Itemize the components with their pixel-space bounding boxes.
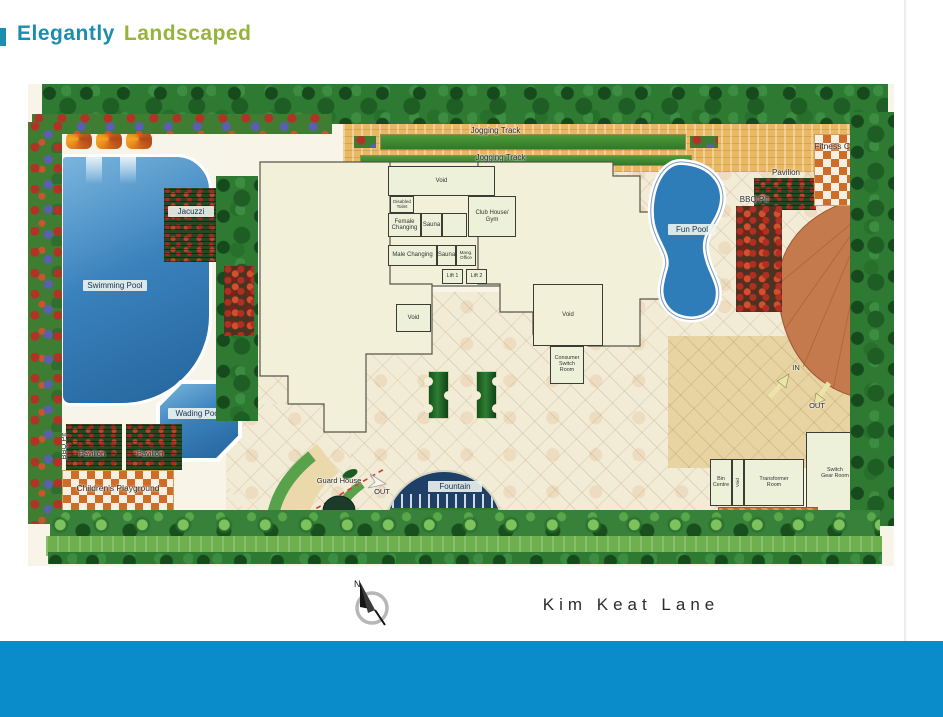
room-void-top: Void: [388, 166, 495, 196]
drive-in-arrow-icon: [770, 374, 789, 397]
waterfall-icon: [86, 156, 102, 184]
hedge-south: [48, 552, 882, 564]
room-bin-centre: Bin Centre: [710, 459, 732, 506]
childrens-playground-label: Children's Playground: [70, 484, 166, 494]
room-void-bin-label: Void: [736, 478, 741, 487]
drive-out-label: OUT: [802, 402, 832, 410]
pavilion-west-1-structure: [66, 424, 122, 470]
pavilion-east-label: Pavilion: [758, 169, 814, 178]
swimming-pool-label: Swimming Pool: [83, 280, 147, 291]
pavilion-west-1-label: Pavilion: [64, 450, 120, 458]
pavilion-west-2-label: Pavilion: [122, 450, 178, 458]
jacuzzi-label: Jacuzzi: [168, 206, 214, 217]
building-blocks: [260, 162, 668, 432]
street-name-label: Kim Keat Lane: [500, 595, 762, 615]
page-fold-line: [904, 0, 907, 641]
room-unlabelled: [442, 213, 467, 237]
courtyard-planter-2: [476, 371, 497, 419]
waterfall-icon: [120, 156, 136, 184]
pavilion-west-2-structure: [126, 424, 182, 470]
guard-house-label: Guard House: [316, 477, 362, 485]
jacuzzi-trellis: [164, 188, 218, 262]
bbq-pit-east-label: BBQ Pit: [728, 196, 780, 205]
east-flower-wall: [736, 206, 782, 312]
page-title-word-1: Elegantly: [17, 22, 115, 45]
room-male-changing: Male Changing: [388, 245, 437, 266]
room-void-block-a: Void: [396, 304, 431, 332]
courtyard-planter-1: [428, 371, 449, 419]
room-void-bin: Void: [732, 459, 744, 506]
room-disabled-toilet: Disabled Toilet: [390, 196, 414, 213]
north-compass: N: [338, 577, 400, 633]
flower-border-west: [28, 122, 62, 524]
room-consumer-switch: Consumer Switch Room: [550, 346, 584, 384]
flower-bed-northwest: [32, 114, 332, 134]
fun-pool-water: [651, 162, 723, 320]
compass-n-glyph: N: [354, 579, 361, 589]
room-sauna-male: Sauna: [437, 245, 456, 266]
drive-in-label: IN: [784, 364, 808, 372]
tree-border-east: [850, 112, 894, 526]
room-transformer: Transformer Room: [744, 459, 804, 506]
bottom-blue-band: [0, 641, 943, 717]
gate-out-label: OUT: [368, 488, 396, 496]
room-void-block-b: Void: [533, 284, 603, 346]
fountain-label: Fountain: [428, 481, 482, 492]
site-plan: Jogging Track Jogging Track: [28, 84, 894, 566]
room-female-changing: Female Changing: [388, 213, 421, 237]
room-sauna-female: Sauna: [421, 213, 442, 237]
room-lift-1: Lift 1: [442, 269, 463, 284]
title-accent-tick: [0, 28, 6, 46]
room-club-house-gym: Club House/ Gym: [468, 196, 516, 237]
fun-pool-label: Fun Pool: [668, 224, 716, 235]
page-title: ElegantlyLandscaped: [17, 22, 251, 46]
room-mang-office: Mang. Office: [456, 245, 476, 266]
page-title-word-2: Landscaped: [124, 22, 252, 45]
room-lift-2: Lift 2: [466, 269, 487, 284]
central-flower-wall: [224, 266, 254, 336]
